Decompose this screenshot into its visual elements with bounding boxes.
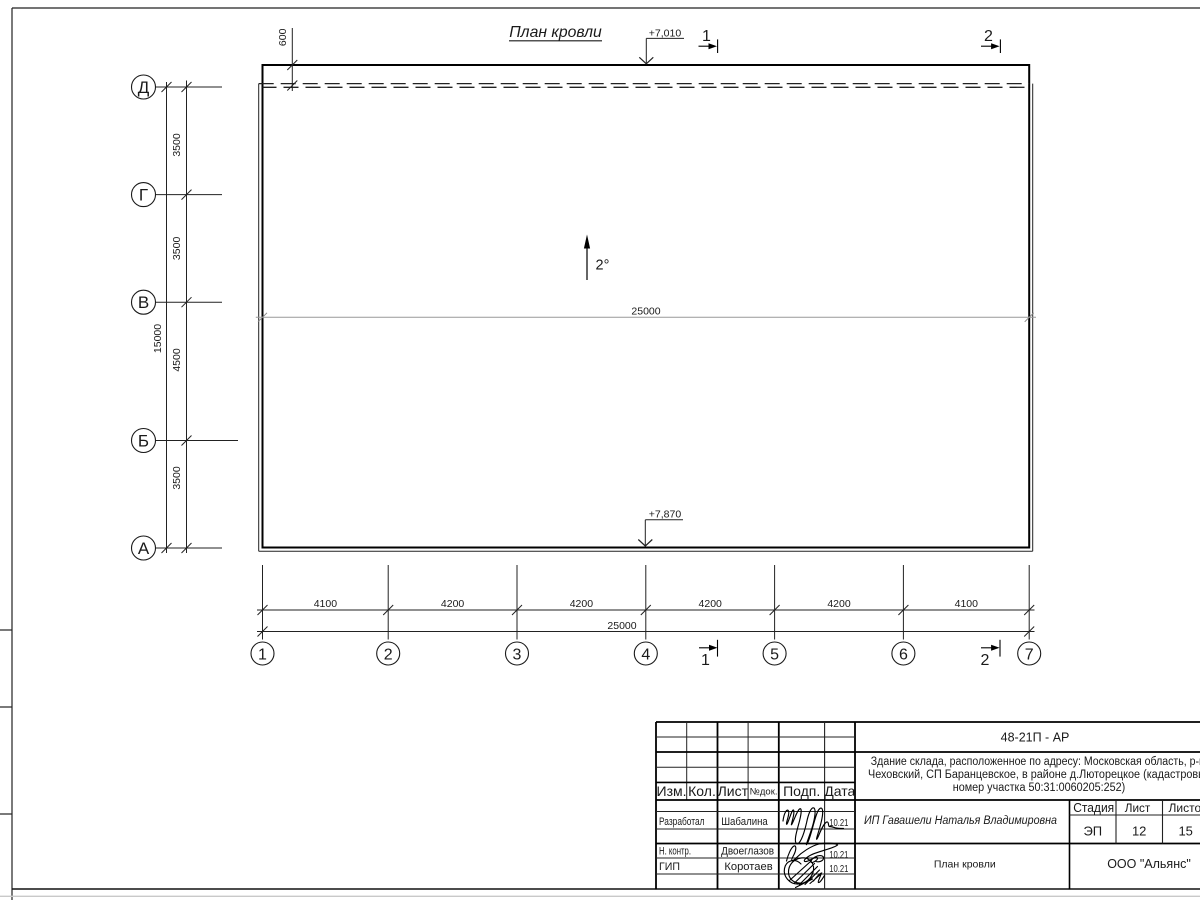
- svg-text:1: 1: [258, 646, 267, 663]
- svg-text:+7,870: +7,870: [649, 509, 682, 521]
- svg-text:ООО "Альянс": ООО "Альянс": [1107, 857, 1191, 871]
- svg-text:ЭП: ЭП: [1083, 824, 1102, 839]
- svg-text:12: 12: [1132, 824, 1146, 839]
- svg-text:Г: Г: [139, 186, 148, 205]
- svg-text:10.21: 10.21: [829, 850, 849, 861]
- svg-text:4100: 4100: [955, 598, 979, 610]
- svg-text:600: 600: [277, 28, 289, 46]
- svg-text:План кровли: План кровли: [934, 858, 996, 870]
- svg-text:Чеховский, СП Баранцевское, в: Чеховский, СП Баранцевское, в районе д.Л…: [868, 769, 1200, 781]
- svg-text:7: 7: [1025, 646, 1034, 663]
- svg-text:+7,010: +7,010: [649, 27, 682, 39]
- svg-text:2°: 2°: [596, 258, 610, 274]
- svg-text:3500: 3500: [171, 466, 183, 490]
- svg-text:4200: 4200: [699, 598, 723, 610]
- svg-text:1: 1: [702, 28, 711, 45]
- svg-text:48-21П - АР: 48-21П - АР: [1001, 731, 1070, 745]
- svg-text:2: 2: [384, 646, 393, 663]
- svg-text:2: 2: [984, 28, 993, 45]
- svg-text:Кол.: Кол.: [688, 783, 716, 799]
- svg-text:Здание склада, расположенное п: Здание склада, расположенное по адресу: …: [871, 756, 1200, 768]
- svg-text:Двоеглазов: Двоеглазов: [721, 846, 774, 858]
- svg-text:Лист: Лист: [1125, 801, 1151, 815]
- svg-text:15000: 15000: [152, 324, 164, 353]
- svg-text:А: А: [138, 539, 150, 558]
- svg-text:№док.: №док.: [750, 787, 778, 798]
- svg-text:Листов: Листов: [1169, 801, 1200, 815]
- svg-text:Д: Д: [138, 78, 150, 97]
- svg-text:Лист: Лист: [718, 783, 749, 799]
- svg-text:15: 15: [1178, 824, 1192, 839]
- svg-text:ИП Гавашели Наталья Владимиров: ИП Гавашели Наталья Владимировна: [864, 815, 1057, 827]
- svg-text:номер участка 50:31:0060205:25: номер участка 50:31:0060205:252): [953, 782, 1126, 794]
- svg-text:4: 4: [641, 646, 650, 663]
- svg-text:Изм.: Изм.: [657, 783, 687, 799]
- svg-text:В: В: [138, 293, 149, 312]
- svg-text:Разработал: Разработал: [659, 816, 705, 828]
- svg-text:Шабалина: Шабалина: [721, 816, 768, 828]
- svg-text:Б: Б: [138, 432, 149, 451]
- svg-text:3500: 3500: [171, 237, 183, 261]
- svg-text:1: 1: [701, 652, 710, 669]
- svg-text:Н. контр.: Н. контр.: [659, 846, 691, 858]
- svg-text:10.21: 10.21: [829, 864, 849, 875]
- svg-text:4100: 4100: [314, 598, 338, 610]
- svg-text:Стадия: Стадия: [1073, 801, 1114, 815]
- svg-text:4200: 4200: [441, 598, 465, 610]
- svg-text:4200: 4200: [827, 598, 851, 610]
- svg-text:6: 6: [899, 646, 908, 663]
- svg-text:ГИП: ГИП: [659, 861, 680, 873]
- svg-text:3: 3: [513, 646, 522, 663]
- svg-text:Дата: Дата: [824, 783, 855, 799]
- svg-text:4200: 4200: [570, 598, 594, 610]
- svg-text:4500: 4500: [171, 348, 183, 372]
- svg-text:25000: 25000: [607, 620, 636, 632]
- svg-text:2: 2: [981, 652, 990, 669]
- svg-text:25000: 25000: [631, 306, 660, 318]
- svg-text:5: 5: [770, 646, 779, 663]
- svg-text:Подп.: Подп.: [783, 783, 820, 799]
- svg-text:3500: 3500: [171, 133, 183, 157]
- svg-text:План кровли: План кровли: [509, 24, 602, 41]
- svg-text:Коротаев: Коротаев: [724, 861, 772, 873]
